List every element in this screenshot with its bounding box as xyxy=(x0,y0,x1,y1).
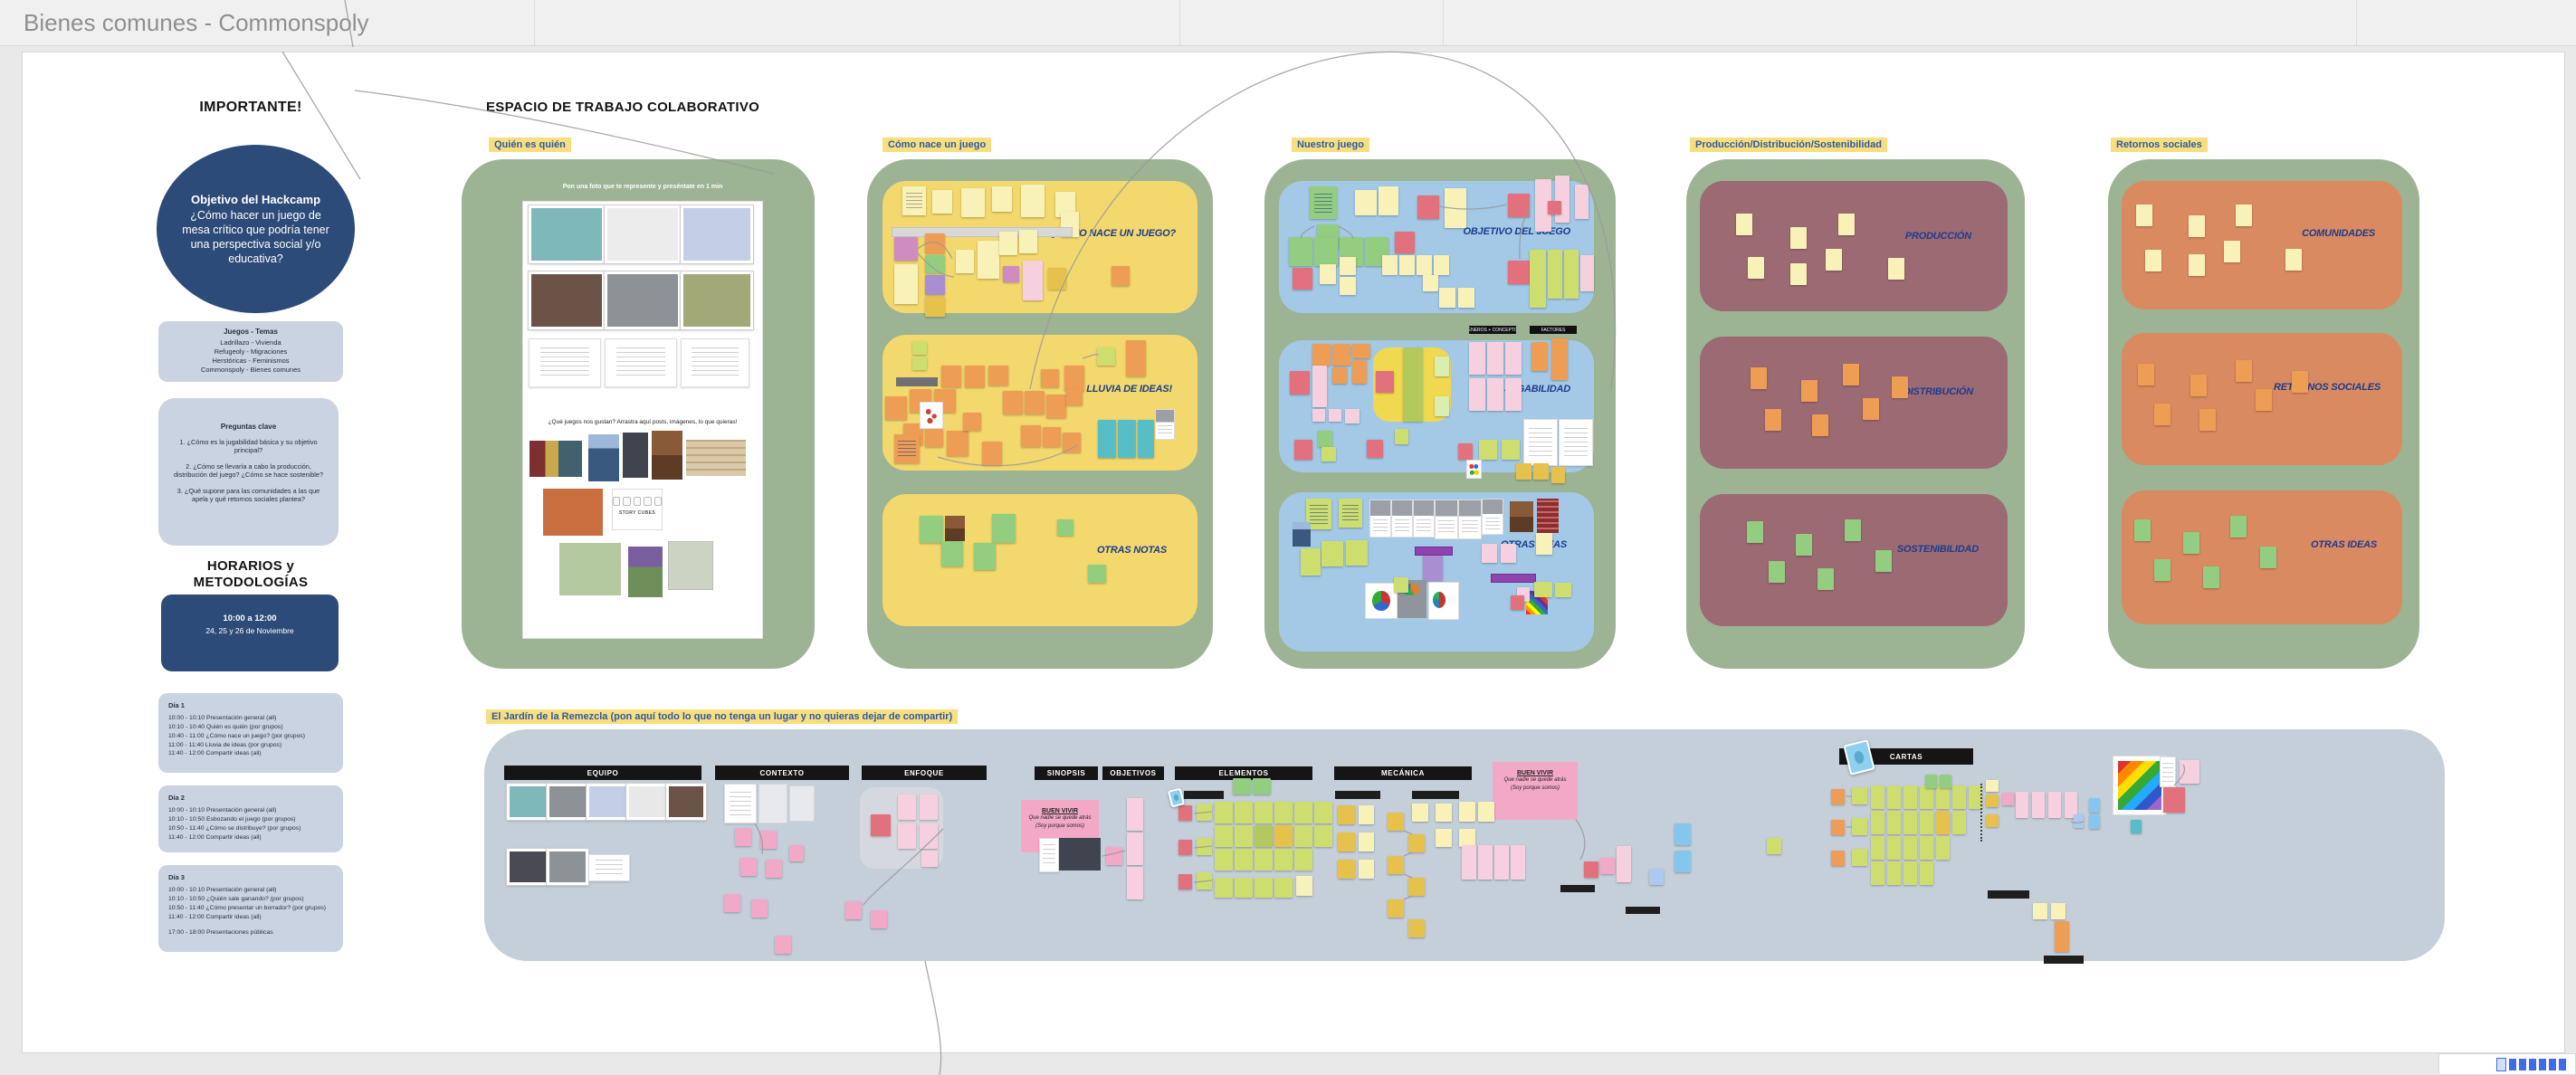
image-card[interactable] xyxy=(1428,582,1459,620)
sticky-note[interactable] xyxy=(1649,869,1664,885)
sticky-note[interactable] xyxy=(2048,792,2061,818)
sticky-note[interactable] xyxy=(2183,532,2199,554)
sticky-note[interactable] xyxy=(1482,544,1497,563)
sticky-note[interactable] xyxy=(1066,389,1083,405)
sticky-note[interactable] xyxy=(1019,230,1037,253)
sticky-note[interactable] xyxy=(2180,760,2199,784)
sticky-note[interactable] xyxy=(1312,344,1331,366)
sticky-note[interactable] xyxy=(1274,878,1293,898)
sticky-note[interactable] xyxy=(1417,195,1439,219)
sticky-note[interactable] xyxy=(1530,250,1546,308)
sticky-note[interactable] xyxy=(2089,814,2100,829)
mini-section-bar[interactable] xyxy=(1988,890,2029,899)
image-card[interactable] xyxy=(668,541,713,590)
sticky-note[interactable] xyxy=(871,814,891,836)
sticky-note[interactable] xyxy=(920,516,943,543)
sticky-note[interactable] xyxy=(1423,275,1438,291)
document-card[interactable] xyxy=(588,854,630,881)
sticky-note[interactable] xyxy=(2016,792,2028,818)
sticky-note[interactable] xyxy=(1936,811,1950,834)
sticky-note[interactable] xyxy=(751,899,768,918)
sticky-note[interactable] xyxy=(1796,534,1812,556)
sticky-note[interactable] xyxy=(1478,845,1493,880)
photo-card[interactable] xyxy=(681,205,753,263)
sticky-note[interactable] xyxy=(1936,836,1950,860)
sticky-note[interactable] xyxy=(1767,838,1781,854)
sticky-note[interactable] xyxy=(1235,825,1253,847)
sticky-note[interactable] xyxy=(735,828,751,846)
sticky-note[interactable] xyxy=(2260,547,2276,568)
sticky-note[interactable] xyxy=(1508,194,1530,217)
sticky-note[interactable] xyxy=(2230,516,2247,537)
sticky-note[interactable] xyxy=(2189,215,2205,237)
sticky-note[interactable] xyxy=(1088,565,1106,583)
sticky-note[interactable] xyxy=(766,860,782,878)
sticky-note[interactable] xyxy=(1255,849,1273,870)
sticky-note[interactable] xyxy=(1329,409,1341,422)
sticky-note[interactable] xyxy=(912,357,927,370)
sticky-note[interactable] xyxy=(1564,250,1579,299)
importante-heading[interactable]: IMPORTANTE! xyxy=(154,100,348,116)
sticky-note[interactable] xyxy=(1127,798,1143,831)
sticky-note[interactable] xyxy=(1986,780,1999,792)
mini-label-bar[interactable] xyxy=(896,377,938,386)
sticky-note[interactable] xyxy=(1469,342,1485,375)
sticky-note[interactable] xyxy=(961,188,985,217)
sticky-note[interactable] xyxy=(1394,577,1408,593)
sticky-note[interactable] xyxy=(1423,556,1443,581)
sticky-note[interactable] xyxy=(1458,288,1474,308)
sticky-note[interactable] xyxy=(1289,237,1312,266)
sticky-note[interactable] xyxy=(1379,186,1398,215)
sticky-note[interactable] xyxy=(1952,785,1966,809)
mini-section-bar[interactable] xyxy=(1560,885,1595,892)
sticky-note[interactable] xyxy=(2074,814,2084,828)
photo-card[interactable] xyxy=(587,784,628,820)
photo-card[interactable] xyxy=(605,271,681,329)
sticky-note[interactable] xyxy=(2189,254,2205,276)
photo-card[interactable] xyxy=(529,271,605,329)
sticky-note[interactable] xyxy=(1197,838,1212,855)
garden-bar-contexto[interactable]: CONTEXTO xyxy=(715,766,849,780)
sticky-note[interactable] xyxy=(1127,832,1143,865)
sticky-note[interactable] xyxy=(1531,342,1548,371)
sticky-note[interactable] xyxy=(925,255,945,273)
sticky-note[interactable] xyxy=(1790,263,1807,285)
minimap-bar[interactable] xyxy=(2519,1059,2526,1070)
sticky-note[interactable] xyxy=(1548,250,1562,299)
sticky-note[interactable] xyxy=(2292,371,2308,393)
sticky-note[interactable] xyxy=(1352,344,1370,358)
sticky-note[interactable] xyxy=(898,794,916,820)
sticky-note[interactable] xyxy=(1399,255,1415,275)
sticky-note[interactable] xyxy=(925,233,945,253)
sticky-note[interactable] xyxy=(1920,836,1933,860)
mini-section-bar[interactable] xyxy=(2044,956,2084,964)
sticky-note[interactable] xyxy=(947,431,968,456)
sticky-note[interactable] xyxy=(1479,440,1497,460)
sticky-note[interactable] xyxy=(1765,409,1781,431)
sticky-note[interactable] xyxy=(1340,257,1356,275)
sticky-note[interactable] xyxy=(1903,861,1917,885)
sticky-note[interactable] xyxy=(1952,811,1966,834)
sticky-note[interactable] xyxy=(1533,463,1549,480)
sticky-note[interactable] xyxy=(1296,876,1312,896)
sticky-note[interactable] xyxy=(1255,802,1273,823)
image-card[interactable] xyxy=(1510,501,1533,532)
sticky-note[interactable] xyxy=(1314,802,1332,823)
image-card[interactable] xyxy=(628,547,663,597)
sticky-note[interactable] xyxy=(1382,255,1398,275)
sticky-note[interactable] xyxy=(1831,789,1845,804)
sticky-note[interactable] xyxy=(2033,903,2047,919)
article-card[interactable] xyxy=(1369,499,1391,537)
garden-bar-mecanica[interactable]: MECÁNICA xyxy=(1334,766,1472,780)
sticky-note[interactable] xyxy=(1235,802,1253,823)
sticky-note[interactable] xyxy=(1235,849,1253,870)
minimap-viewport[interactable] xyxy=(2496,1058,2506,1071)
document-card[interactable] xyxy=(1523,419,1558,466)
article-card[interactable] xyxy=(1391,499,1413,537)
sticky-note[interactable] xyxy=(1617,846,1631,882)
sticky-note[interactable] xyxy=(894,434,920,463)
image-card[interactable] xyxy=(945,516,965,541)
sticky-note[interactable] xyxy=(1852,849,1867,866)
zone-produccion[interactable]: PRODUCCIÓN xyxy=(1700,181,2008,311)
sticky-note[interactable] xyxy=(1255,825,1273,847)
sticky-note[interactable] xyxy=(1459,802,1475,822)
image-card[interactable] xyxy=(1293,522,1311,547)
dia-1-card[interactable]: Día 1 10:00 - 10:10 Presentación general… xyxy=(158,693,343,773)
sticky-note[interactable] xyxy=(2055,921,2069,952)
sticky-note[interactable] xyxy=(1215,802,1233,823)
photo-card[interactable] xyxy=(681,271,753,329)
sticky-note[interactable] xyxy=(1887,836,1901,860)
sticky-note[interactable] xyxy=(1359,805,1374,824)
sticky-note[interactable] xyxy=(1294,825,1312,847)
sticky-note[interactable] xyxy=(2154,404,2171,425)
sticky-note[interactable] xyxy=(1041,369,1059,387)
image-card[interactable] xyxy=(559,543,621,595)
dotted-divider[interactable] xyxy=(1980,784,1984,842)
image-card[interactable] xyxy=(623,433,648,478)
sticky-note[interactable] xyxy=(1818,568,1834,590)
sticky-note[interactable] xyxy=(1233,778,1251,794)
sticky-note[interactable] xyxy=(1388,899,1404,918)
sticky-note[interactable] xyxy=(1097,347,1115,366)
document-card[interactable] xyxy=(605,338,677,387)
sticky-note[interactable] xyxy=(1339,499,1362,528)
sticky-note[interactable] xyxy=(1863,398,1879,420)
sticky-note[interactable] xyxy=(1748,257,1764,279)
sticky-note[interactable] xyxy=(1359,860,1374,879)
sticky-note[interactable] xyxy=(1403,347,1423,422)
mini-section-bar[interactable] xyxy=(1626,907,1660,914)
sticky-note[interactable] xyxy=(1359,832,1374,851)
mini-section-bar[interactable] xyxy=(1335,791,1380,799)
horario-destacado[interactable]: 10:00 a 12:00 24, 25 y 26 de Noviembre xyxy=(161,595,339,671)
sticky-note[interactable] xyxy=(1355,190,1377,215)
sticky-note[interactable] xyxy=(1346,540,1368,566)
sticky-note[interactable] xyxy=(1338,805,1355,824)
gray-card[interactable] xyxy=(758,784,787,823)
sticky-note[interactable] xyxy=(1235,878,1253,898)
sticky-note[interactable] xyxy=(1057,519,1073,536)
sticky-note[interactable] xyxy=(1458,443,1473,460)
garden-bar-sinopsis[interactable]: SINOPSIS xyxy=(1035,766,1098,780)
sticky-note[interactable] xyxy=(1871,785,1884,809)
image-card[interactable] xyxy=(1059,838,1101,870)
sticky-note[interactable] xyxy=(1435,396,1449,416)
sticky-note[interactable] xyxy=(1903,785,1917,809)
sticky-note[interactable] xyxy=(2131,820,2142,833)
minimap-bar[interactable] xyxy=(2539,1059,2546,1070)
purple-bar[interactable] xyxy=(1415,547,1453,556)
label-bar[interactable] xyxy=(892,227,1073,237)
photo-card[interactable] xyxy=(507,784,549,820)
garden-bar-objetivos[interactable]: OBJETIVOS xyxy=(1102,766,1164,780)
sticky-note[interactable] xyxy=(1118,420,1136,458)
sticky-note[interactable] xyxy=(1138,420,1154,458)
sticky-note[interactable] xyxy=(1478,802,1494,822)
sticky-note[interactable] xyxy=(1294,849,1312,870)
sticky-note[interactable] xyxy=(2224,241,2240,262)
sticky-note[interactable] xyxy=(1462,845,1476,880)
sticky-note[interactable] xyxy=(1487,378,1503,411)
juegos-temas-card[interactable]: Juegos - Temas Ladrillazo - ViviendaRefu… xyxy=(158,321,343,382)
minimap-bar[interactable] xyxy=(2559,1059,2566,1070)
sticky-note[interactable] xyxy=(1505,342,1522,375)
sticky-note[interactable] xyxy=(1274,849,1293,870)
document-card[interactable] xyxy=(1559,419,1593,466)
sticky-note[interactable] xyxy=(1887,811,1901,834)
sticky-note[interactable] xyxy=(1736,214,1752,235)
sticky-note[interactable] xyxy=(1469,378,1485,411)
sticky-note[interactable] xyxy=(1871,811,1884,834)
sticky-note[interactable] xyxy=(1178,805,1192,821)
sticky-note[interactable] xyxy=(925,427,943,447)
color-palette-card[interactable] xyxy=(2113,756,2166,814)
sticky-note[interactable] xyxy=(2032,792,2045,818)
sticky-note[interactable] xyxy=(1875,550,1892,572)
sticky-note[interactable] xyxy=(1600,858,1615,874)
sticky-note[interactable] xyxy=(1551,467,1565,483)
sticky-note[interactable] xyxy=(1769,561,1785,583)
garden-bar-equipo[interactable]: EQUIPO xyxy=(504,766,701,780)
garden-label[interactable]: El Jardín de la Remezcla (pon aquí todo … xyxy=(486,709,958,724)
minimap-widget[interactable] xyxy=(2438,1053,2576,1075)
image-card[interactable] xyxy=(920,402,943,429)
sticky-note[interactable] xyxy=(1111,266,1130,286)
sticky-note[interactable] xyxy=(1294,802,1312,823)
photo-card[interactable] xyxy=(605,205,681,263)
document-card[interactable] xyxy=(681,338,749,387)
sticky-note[interactable] xyxy=(1536,533,1552,555)
sticky-note[interactable] xyxy=(1197,804,1212,821)
sticky-note[interactable] xyxy=(1215,849,1233,870)
mini-section-bar[interactable] xyxy=(1184,791,1224,799)
sticky-note[interactable] xyxy=(1436,804,1452,822)
horarios-heading[interactable]: HORARIOS y METODOLOGÍAS xyxy=(154,558,348,591)
sticky-note[interactable] xyxy=(1434,255,1449,275)
gray-card[interactable] xyxy=(789,785,815,822)
sticky-note[interactable] xyxy=(1320,264,1336,284)
sticky-note[interactable] xyxy=(1838,214,1855,235)
sticky-note[interactable] xyxy=(1408,919,1425,937)
minimap-bar[interactable] xyxy=(2549,1059,2556,1070)
sticky-note[interactable] xyxy=(1555,176,1569,223)
sticky-note[interactable] xyxy=(1376,371,1394,393)
sticky-note[interactable] xyxy=(1388,856,1404,874)
sticky-note[interactable] xyxy=(999,232,1017,255)
mini-section-bar[interactable] xyxy=(1412,791,1459,799)
sticky-note[interactable] xyxy=(1332,367,1347,384)
sticky-note[interactable] xyxy=(2002,793,2014,805)
sticky-note[interactable] xyxy=(2285,249,2302,271)
sticky-note[interactable] xyxy=(1003,391,1023,414)
sticky-note[interactable] xyxy=(1831,820,1845,835)
zone-sostenibilidad[interactable]: SOSTENIBILIDAD xyxy=(1700,494,2008,626)
sticky-note[interactable] xyxy=(1790,227,1807,249)
document-card[interactable] xyxy=(2160,756,2176,787)
sticky-note[interactable] xyxy=(2134,519,2151,541)
garden-bar-enfoque[interactable]: ENFOQUE xyxy=(862,766,987,780)
image-card[interactable] xyxy=(1365,583,1398,619)
sticky-note[interactable] xyxy=(1338,860,1355,879)
sticky-note[interactable] xyxy=(1314,825,1332,847)
sticky-note[interactable] xyxy=(1445,188,1466,228)
sticky-note[interactable] xyxy=(1871,861,1884,885)
sticky-note[interactable] xyxy=(1871,836,1884,860)
sticky-note[interactable] xyxy=(1178,874,1192,889)
photo-card[interactable] xyxy=(529,205,605,263)
sticky-note[interactable] xyxy=(1253,778,1271,794)
sticky-note[interactable] xyxy=(941,366,961,387)
sticky-note[interactable] xyxy=(2256,389,2272,411)
minimap-bar[interactable] xyxy=(2509,1059,2516,1070)
sticky-note[interactable] xyxy=(1255,878,1273,898)
article-card[interactable] xyxy=(1458,499,1482,539)
image-card[interactable] xyxy=(686,440,746,476)
sticky-note[interactable] xyxy=(789,845,804,861)
frame-label-produccion[interactable]: Producción/Distribución/Sostenibilidad xyxy=(1690,138,1887,152)
sticky-note[interactable] xyxy=(920,794,938,820)
sticky-note[interactable] xyxy=(2051,903,2066,919)
sticky-note[interactable] xyxy=(1025,391,1045,414)
sticky-note[interactable] xyxy=(1903,836,1917,860)
sticky-note[interactable] xyxy=(1534,582,1552,597)
sticky-note[interactable] xyxy=(1178,840,1192,855)
sticky-note[interactable] xyxy=(1936,785,1950,809)
sticky-note[interactable] xyxy=(1293,268,1312,290)
sticky-note[interactable] xyxy=(1338,832,1355,851)
sticky-note[interactable] xyxy=(1812,414,1828,436)
sticky-note[interactable] xyxy=(2199,409,2216,431)
sticky-note[interactable] xyxy=(1106,847,1122,865)
zone-otras-notas[interactable]: OTRAS NOTAS xyxy=(883,494,1197,626)
sticky-note[interactable] xyxy=(1408,834,1425,852)
sticky-note[interactable] xyxy=(1274,825,1293,847)
sticky-note[interactable] xyxy=(982,442,1002,465)
article-card[interactable] xyxy=(1155,409,1175,440)
image-card[interactable] xyxy=(1466,460,1482,479)
sticky-note[interactable] xyxy=(1439,288,1455,308)
preguntas-clave-card[interactable]: Preguntas clave 1. ¿Cómo es la jugabilid… xyxy=(158,398,339,546)
sticky-note[interactable] xyxy=(1412,804,1428,822)
sticky-note[interactable] xyxy=(1046,395,1066,418)
image-card[interactable] xyxy=(652,431,682,480)
image-card[interactable] xyxy=(1537,499,1559,533)
sticky-note[interactable] xyxy=(1580,255,1594,291)
tag-generos-conceptos[interactable]: GÉNEROS + CONCEPTOS xyxy=(1469,326,1516,334)
sticky-note[interactable] xyxy=(1674,851,1691,872)
sticky-note[interactable] xyxy=(978,241,999,279)
frame-label-quien-es-quien[interactable]: Quién es quién xyxy=(489,138,571,152)
sticky-note[interactable] xyxy=(965,366,985,387)
sticky-note[interactable] xyxy=(1548,201,1561,214)
sticky-note[interactable] xyxy=(1345,409,1360,423)
sticky-note[interactable] xyxy=(1021,185,1045,217)
sticky-note[interactable] xyxy=(1436,829,1452,847)
sticky-note[interactable] xyxy=(1003,266,1019,282)
image-card[interactable] xyxy=(588,434,619,481)
sticky-note[interactable] xyxy=(974,543,996,570)
sticky-note[interactable] xyxy=(1314,237,1338,266)
sticky-note[interactable] xyxy=(898,823,916,849)
photo-card[interactable] xyxy=(547,849,588,885)
tag-factores[interactable]: FACTORES xyxy=(1530,326,1577,334)
sticky-note[interactable] xyxy=(1920,785,1933,809)
sticky-note[interactable] xyxy=(1986,814,1999,827)
sticky-note[interactable] xyxy=(1340,277,1356,295)
sticky-note[interactable] xyxy=(921,851,938,867)
photo-card[interactable] xyxy=(507,849,549,885)
sticky-note[interactable] xyxy=(2203,566,2219,588)
sticky-note[interactable] xyxy=(920,823,938,849)
sticky-note[interactable] xyxy=(2236,360,2252,382)
sticky-note[interactable] xyxy=(1063,433,1081,452)
sticky-note[interactable] xyxy=(775,936,791,954)
sticky-note[interactable] xyxy=(740,858,757,876)
sticky-note[interactable] xyxy=(1332,344,1350,366)
sticky-note[interactable] xyxy=(1064,366,1084,391)
photo-card[interactable] xyxy=(626,784,668,820)
article-card[interactable] xyxy=(1482,499,1503,535)
photo-card[interactable] xyxy=(666,784,706,820)
sticky-note[interactable] xyxy=(1023,261,1043,300)
minimap-bar[interactable] xyxy=(2529,1059,2536,1070)
sticky-note[interactable] xyxy=(1892,376,1908,398)
buen-vivir-card-right[interactable]: BUEN VIVIR Que nadie se quede atrás (Soy… xyxy=(1493,762,1578,820)
sticky-note[interactable] xyxy=(1516,463,1531,480)
sticky-note[interactable] xyxy=(1098,420,1116,458)
sticky-note[interactable] xyxy=(988,366,1008,385)
sticky-note[interactable] xyxy=(992,186,1012,212)
frame-label-nuestro-juego[interactable]: Nuestro juego xyxy=(1292,138,1369,152)
sticky-note[interactable] xyxy=(912,341,927,355)
sticky-note[interactable] xyxy=(925,275,945,295)
sticky-note[interactable] xyxy=(1215,878,1233,898)
sticky-note[interactable] xyxy=(1502,440,1520,460)
sticky-note[interactable] xyxy=(2190,375,2207,396)
sticky-note[interactable] xyxy=(1920,811,1933,834)
photo-card[interactable] xyxy=(547,784,588,820)
sticky-note[interactable] xyxy=(1408,878,1425,896)
sticky-note[interactable] xyxy=(1555,583,1571,597)
sticky-note[interactable] xyxy=(1215,825,1233,847)
sticky-note[interactable] xyxy=(2138,364,2154,385)
sticky-note[interactable] xyxy=(1127,867,1143,899)
